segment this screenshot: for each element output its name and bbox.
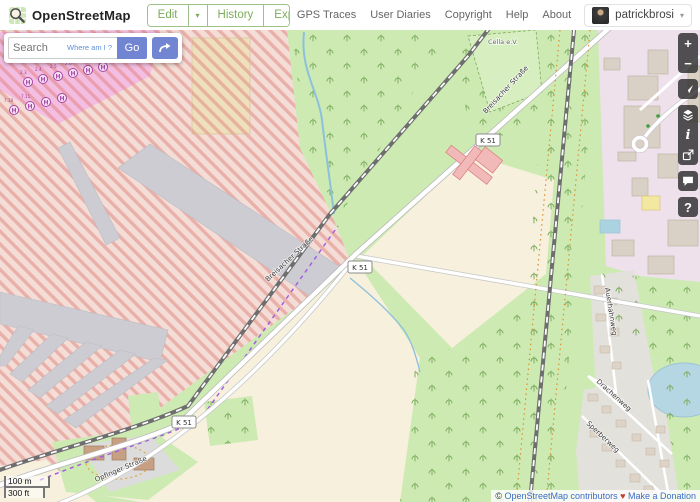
nav-button-group: Edit ▾ History Export xyxy=(147,4,290,27)
locate-button[interactable] xyxy=(678,79,698,99)
helipad-ref: 7.11 xyxy=(21,94,31,99)
helipad-ref: 2.4 xyxy=(35,67,42,72)
directions-button[interactable] xyxy=(152,37,178,59)
export-button[interactable]: Export xyxy=(263,5,290,26)
zoom-out-button[interactable]: − xyxy=(678,53,698,73)
helipad-icon: H xyxy=(100,65,105,72)
osm-contributors-link[interactable]: OpenStreetMap contributors xyxy=(505,491,618,501)
donate-link[interactable]: Make a Donation xyxy=(628,491,696,501)
helipad-icon: H xyxy=(25,80,30,87)
helipad-icon: H xyxy=(55,74,60,81)
user-menu[interactable]: patrickbrosi ▾ xyxy=(584,4,692,27)
caret-down-icon: ▾ xyxy=(196,11,200,20)
layers-button[interactable] xyxy=(678,105,698,125)
where-am-i-link[interactable]: Where am I ? xyxy=(67,43,112,52)
gps-traces-link[interactable]: GPS Traces xyxy=(297,9,356,21)
helipad-icon: H xyxy=(85,68,90,75)
road-ref-badge: K 51 xyxy=(480,137,496,145)
share-button[interactable] xyxy=(678,145,698,165)
scale-imperial: 300 ft xyxy=(4,486,45,498)
site-title: OpenStreetMap xyxy=(32,8,131,23)
road-ref-badge: K 51 xyxy=(352,264,368,272)
map-key-button[interactable]: i xyxy=(678,125,698,145)
helipad-icon: H xyxy=(40,77,45,84)
go-button[interactable]: Go xyxy=(117,37,147,59)
zoom-in-button[interactable]: + xyxy=(678,33,698,53)
construction-area xyxy=(192,38,250,134)
layers-icon xyxy=(681,108,695,122)
helipad-icon: H xyxy=(11,108,16,115)
help-link[interactable]: Help xyxy=(506,9,529,21)
history-button[interactable]: History xyxy=(207,5,264,26)
map-canvas[interactable]: H H H H H H H H H H 2.3 2.4 2.5 2.6 2.9 … xyxy=(0,30,700,502)
username: patrickbrosi xyxy=(615,9,674,21)
edit-button[interactable]: Edit xyxy=(148,5,188,26)
helipad-icon: H xyxy=(43,100,48,107)
attribution-bar: © OpenStreetMap contributors ♥ Make a Do… xyxy=(491,490,700,502)
road-ref-badge: K 51 xyxy=(176,419,192,427)
helipad-ref: 7.10 xyxy=(4,98,14,103)
pool xyxy=(600,220,620,233)
user-diaries-link[interactable]: User Diaries xyxy=(370,9,431,21)
caret-down-icon: ▾ xyxy=(680,11,684,20)
user-avatar xyxy=(592,7,609,24)
helipad-icon: H xyxy=(27,104,32,111)
helipad-icon: H xyxy=(70,71,75,78)
yellow-building xyxy=(642,196,660,210)
edit-dropdown-caret[interactable]: ▾ xyxy=(188,5,207,26)
note-bubble-icon xyxy=(681,174,695,188)
osm-logo-icon xyxy=(8,6,27,25)
copyright-symbol: © xyxy=(495,491,502,501)
map-controls: + − i xyxy=(678,33,698,223)
helipad-icon: H xyxy=(59,96,64,103)
directions-arrow-icon xyxy=(158,42,172,54)
share-icon xyxy=(681,148,695,162)
copyright-link[interactable]: Copyright xyxy=(445,9,492,21)
map-rendering: H H H H H H H H H H 2.3 2.4 2.5 2.6 2.9 … xyxy=(0,30,700,502)
locate-arrow-icon xyxy=(682,83,695,96)
info-icon: i xyxy=(686,128,691,143)
add-note-button[interactable] xyxy=(678,171,698,191)
club-label: Cella e.V. xyxy=(488,38,518,46)
heart-icon: ♥ xyxy=(620,491,625,501)
helipad-ref: 2.5 xyxy=(50,64,57,69)
search-panel: Where am I ? Go xyxy=(4,33,182,63)
header-bar: OpenStreetMap Edit ▾ History Export GPS … xyxy=(0,0,700,30)
scale-control: 100 m 300 ft xyxy=(4,476,50,498)
helipad-ref: 2.3 xyxy=(20,70,27,75)
query-features-button[interactable]: ? xyxy=(678,197,698,217)
about-link[interactable]: About xyxy=(542,9,571,21)
